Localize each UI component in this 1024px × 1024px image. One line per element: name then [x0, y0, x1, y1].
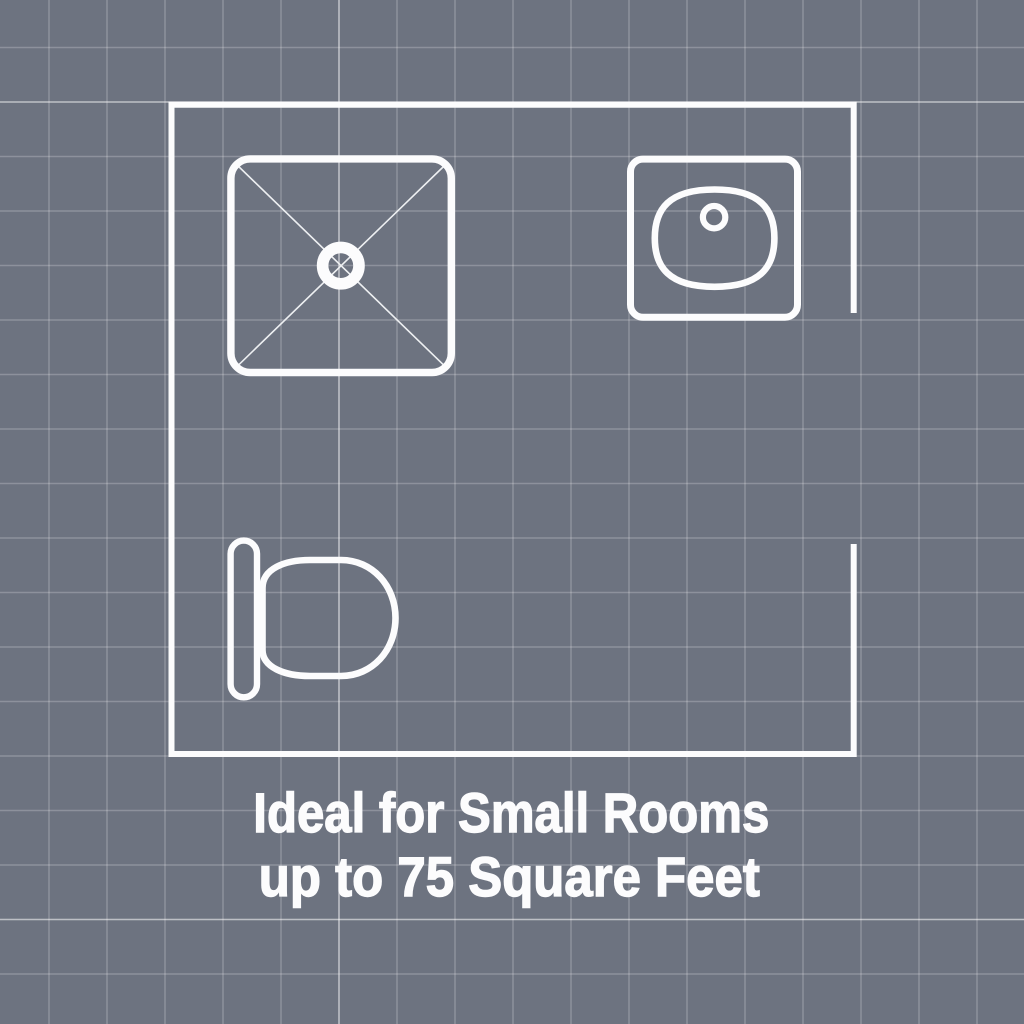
svg-text:Ideal for Small Rooms: Ideal for Small Rooms	[253, 782, 769, 844]
svg-text:up to 75 Square Feet: up to 75 Square Feet	[259, 846, 760, 908]
